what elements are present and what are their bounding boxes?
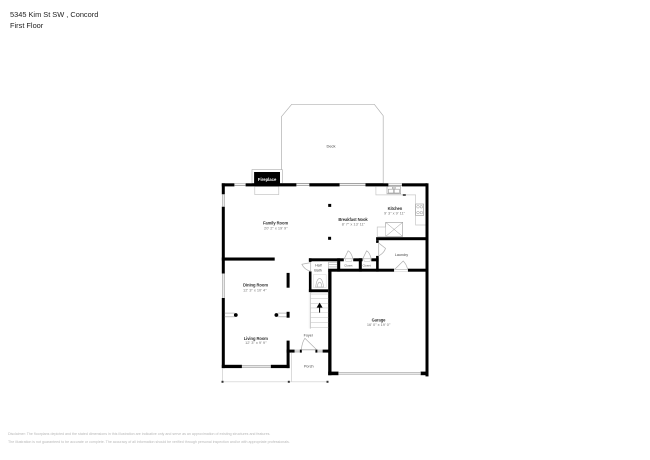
svg-text:Half: Half: [315, 264, 321, 268]
svg-text:First Floor: First Floor: [10, 21, 44, 30]
svg-text:Fireplace: Fireplace: [258, 177, 277, 182]
svg-text:Deck: Deck: [326, 144, 335, 149]
svg-text:Foyer: Foyer: [304, 333, 314, 337]
svg-text:8' 7" x 13' 11": 8' 7" x 13' 11": [342, 222, 366, 227]
svg-text:Disclaimer: The floorplans dep: Disclaimer: The floorplans depicted and …: [8, 432, 270, 436]
svg-text:5345 Kim St SW , Concord: 5345 Kim St SW , Concord: [10, 10, 98, 19]
svg-text:20' 2" x 19' 9": 20' 2" x 19' 9": [264, 225, 288, 230]
svg-text:Dining Room: Dining Room: [243, 282, 268, 287]
svg-text:16' 0" x 19' 0": 16' 0" x 19' 0": [367, 322, 391, 327]
svg-text:12' 3" x 10' 4": 12' 3" x 10' 4": [243, 288, 267, 293]
svg-text:Closet: Closet: [344, 263, 352, 267]
svg-text:12' 3" x 9' 9": 12' 3" x 9' 9": [245, 340, 267, 345]
svg-text:Laundry: Laundry: [395, 253, 408, 257]
svg-text:Porch: Porch: [304, 364, 314, 368]
svg-text:9' 3" x 9' 11": 9' 3" x 9' 11": [384, 210, 406, 215]
svg-text:The illustration is not guaran: The illustration is not guaranteed to be…: [8, 440, 290, 444]
svg-text:Closet: Closet: [362, 263, 370, 267]
svg-text:Bath: Bath: [314, 269, 321, 273]
